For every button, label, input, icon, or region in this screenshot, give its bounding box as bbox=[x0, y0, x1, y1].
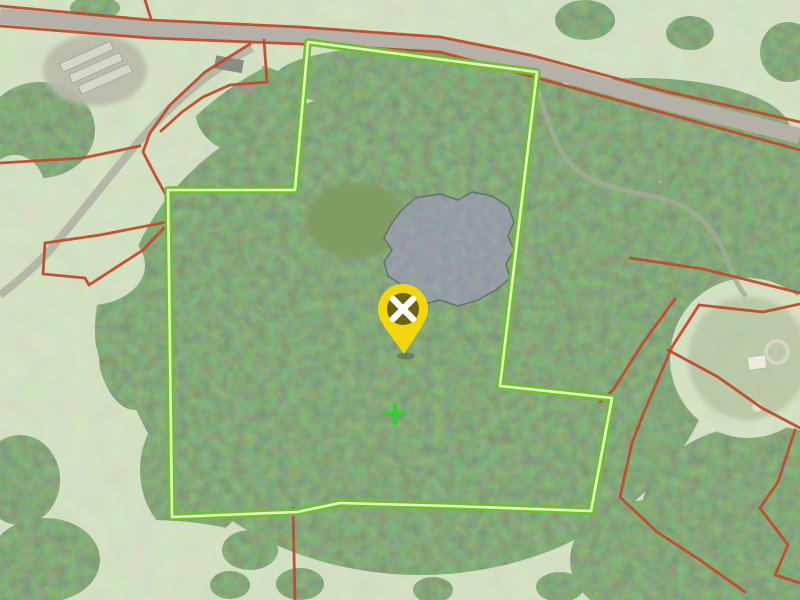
estate-building bbox=[747, 355, 767, 370]
map-viewport[interactable] bbox=[0, 0, 800, 600]
boundary-line bbox=[293, 508, 295, 600]
aerial-map[interactable] bbox=[0, 0, 800, 600]
pin-shadow bbox=[397, 353, 415, 360]
